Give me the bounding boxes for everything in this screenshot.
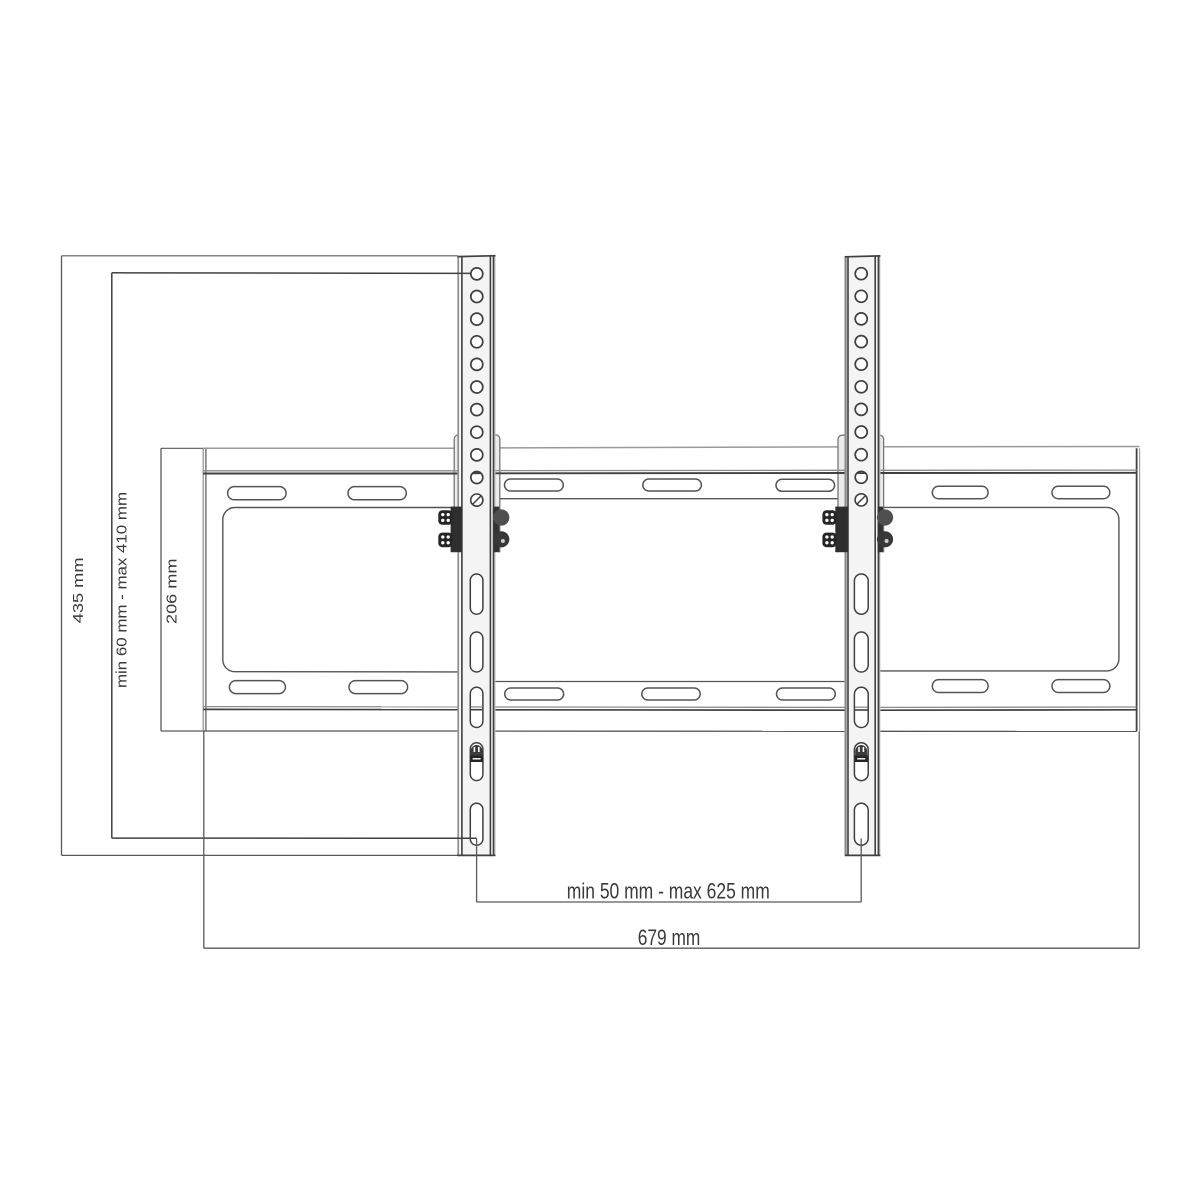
svg-text:206 mm: 206 mm — [165, 559, 181, 625]
svg-text:679 mm: 679 mm — [638, 925, 701, 950]
svg-text:min 50 mm - max 625 mm: min 50 mm - max 625 mm — [567, 879, 770, 904]
svg-text:435 mm: 435 mm — [71, 558, 87, 624]
svg-text:min 60 mm - max 410 mm: min 60 mm - max 410 mm — [114, 492, 130, 688]
